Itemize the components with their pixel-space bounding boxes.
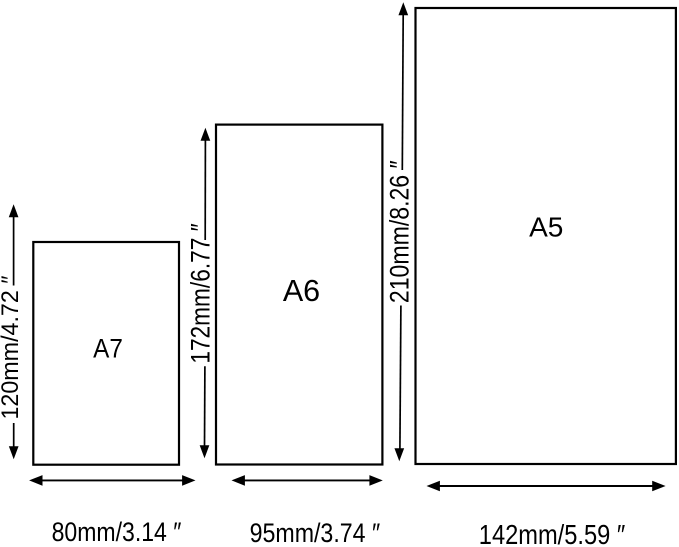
svg-text:172mm/6.77 ″: 172mm/6.77 ″ <box>186 223 216 363</box>
svg-text:120mm/4.72 ″: 120mm/4.72 ″ <box>0 275 24 419</box>
svg-text:210mm/8.26 ″: 210mm/8.26 ″ <box>385 160 415 303</box>
svg-text:A7: A7 <box>93 334 123 363</box>
svg-text:A5: A5 <box>529 212 563 243</box>
svg-text:95mm/3.74 ″: 95mm/3.74 ″ <box>250 519 381 547</box>
svg-text:142mm/5.59 ″: 142mm/5.59 ″ <box>479 520 625 547</box>
svg-text:80mm/3.14 ″: 80mm/3.14 ″ <box>52 519 182 547</box>
svg-text:A6: A6 <box>283 274 320 308</box>
